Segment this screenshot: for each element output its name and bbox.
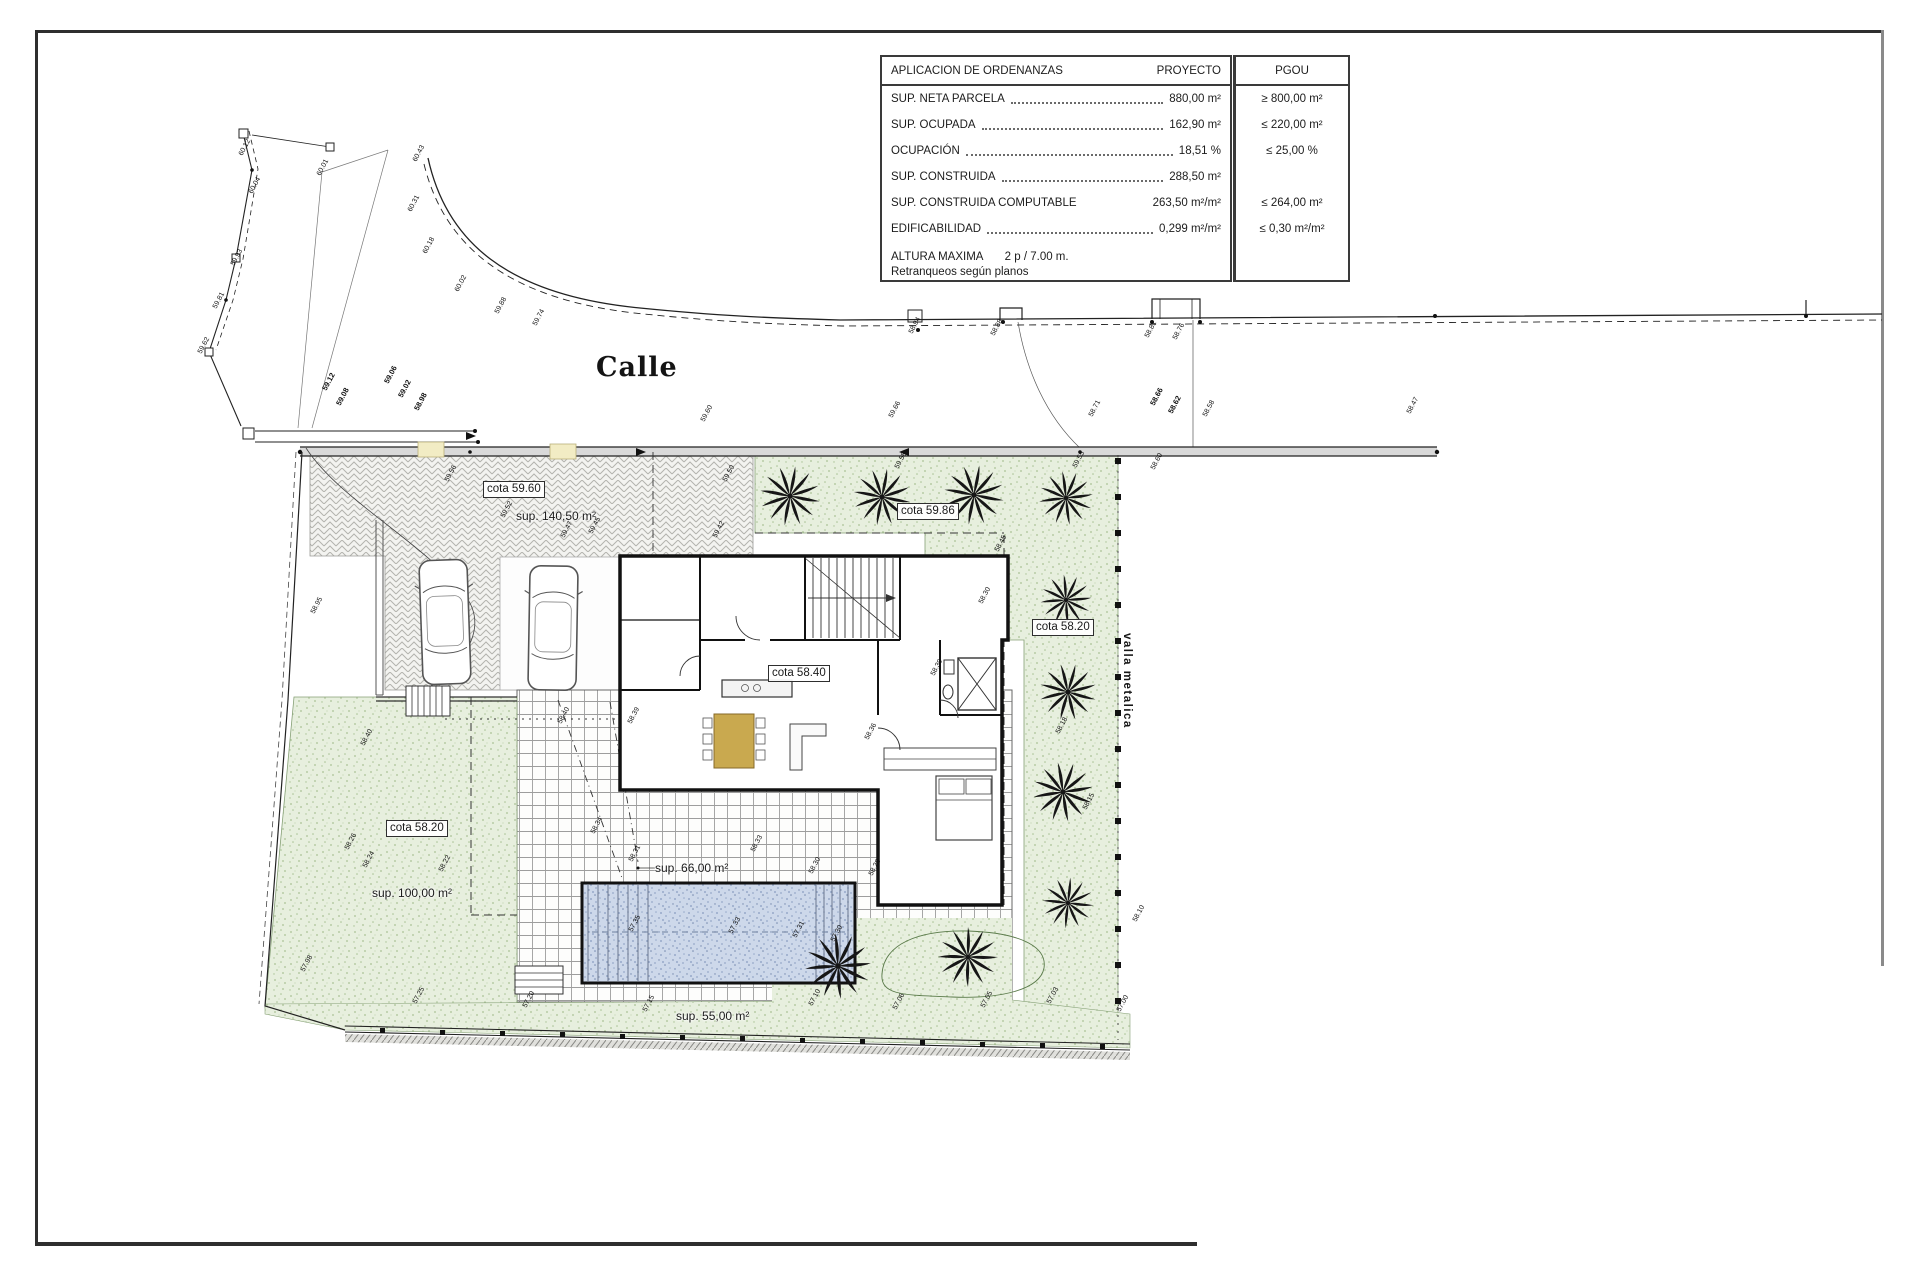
gate-marker [418,442,444,457]
car [414,559,476,685]
pgou-column-header: PGOU [1236,57,1348,86]
altura-label: ALTURA MAXIMA [891,251,983,263]
ordinance-row: EDIFICABILIDAD0,299 m²/m² [882,216,1230,242]
ordinance-pgou-value: ≥ 800,00 m² [1236,86,1348,112]
ordinance-row: OCUPACIÓN18,51 % [882,138,1230,164]
proyecto-column-header: PROYECTO [1157,65,1221,77]
car [523,566,583,691]
gate-marker [550,444,576,459]
dining-table [714,714,754,768]
ordinance-pgou-value [1236,164,1348,190]
ordinance-pgou-value: ≤ 264,00 m² [1236,190,1348,216]
ordinance-table-main: APLICACION DE ORDENANZAS PROYECTO SUP. N… [880,55,1232,282]
ordinance-row: SUP. OCUPADA162,90 m² [882,112,1230,138]
altura-value: 2 p / 7.00 m. [1005,251,1069,263]
ordinance-row: SUP. CONSTRUIDA288,50 m² [882,164,1230,190]
ordinance-row: SUP. NETA PARCELA880,00 m² [882,86,1230,112]
sidewalk-band [298,442,1439,459]
altura-maxima-note: ALTURA MAXIMA 2 p / 7.00 m. Retranqueos … [882,242,1230,280]
ordinance-table: APLICACION DE ORDENANZAS PROYECTO SUP. N… [880,55,1350,282]
retranqueos-note: Retranqueos según planos [891,265,1221,280]
ordinance-pgou-value: ≤ 25,00 % [1236,138,1348,164]
ordinance-pgou-value: ≤ 220,00 m² [1236,112,1348,138]
ordinance-table-header: APLICACION DE ORDENANZAS PROYECTO [882,57,1230,86]
drawing-sheet: APLICACION DE ORDENANZAS PROYECTO SUP. N… [0,0,1920,1280]
ordinance-title: APLICACION DE ORDENANZAS [891,65,1063,77]
ordinance-pgou-value: ≤ 0,30 m²/m² [1236,216,1348,242]
ordinance-row: SUP. CONSTRUIDA COMPUTABLE263,50 m²/m² [882,190,1230,216]
ordinance-table-pgou: PGOU ≥ 800,00 m²≤ 220,00 m²≤ 25,00 %≤ 26… [1233,55,1350,282]
